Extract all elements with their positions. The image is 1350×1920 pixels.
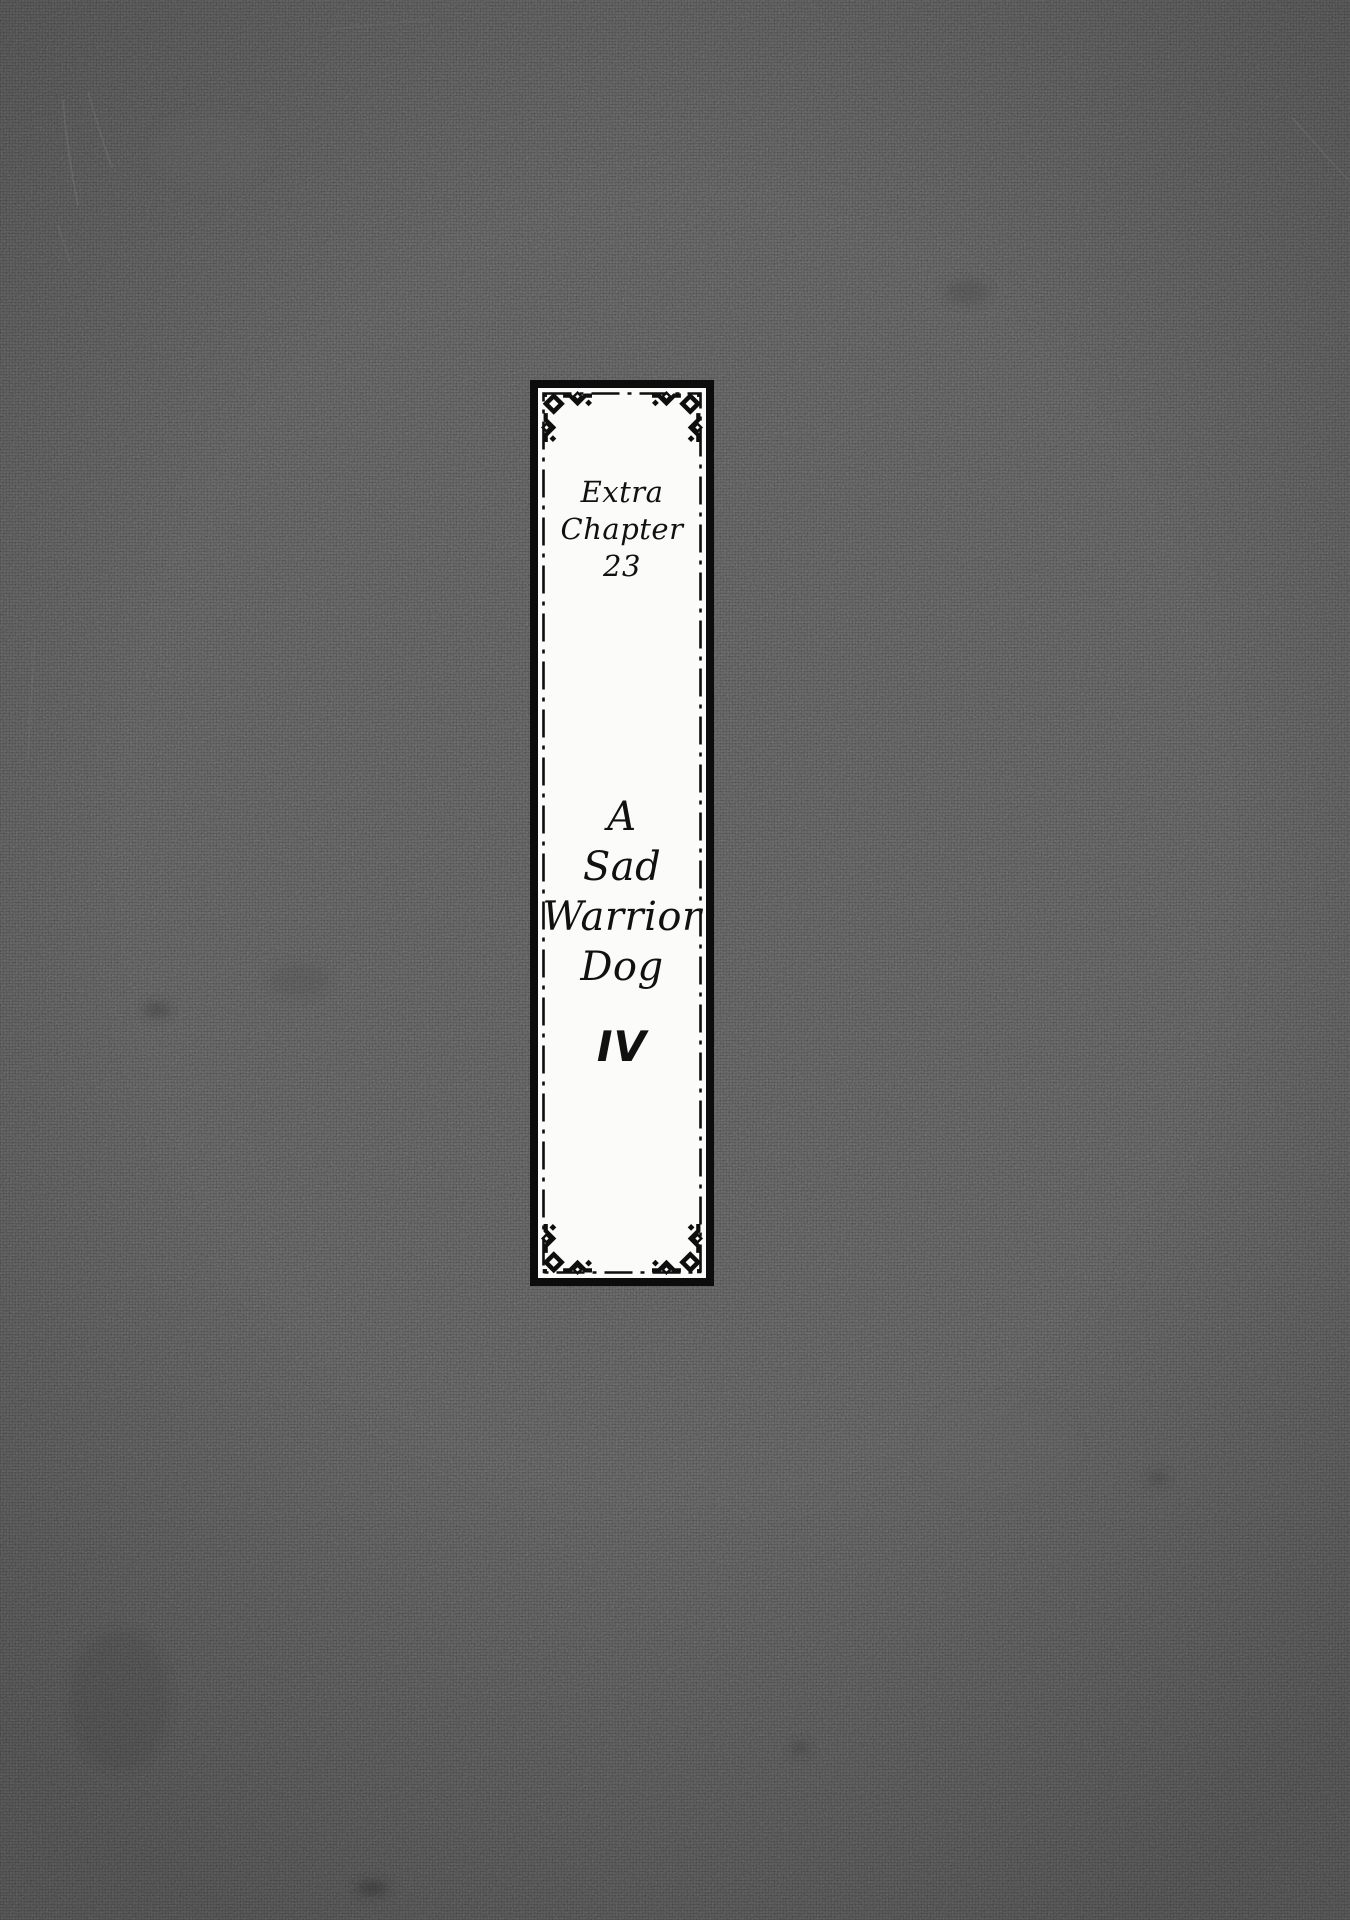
chapter-title-line-4: Dog: [538, 942, 706, 992]
chapter-title-panel: Extra Chapter 23 A Sad Warrior Dog IV: [530, 380, 714, 1286]
corner-ornament-top-right-icon: [652, 391, 703, 442]
corner-ornament-top-left-icon: [541, 391, 592, 442]
volume-numeral: IV: [538, 1024, 706, 1070]
corner-ornament-bottom-right-icon: [652, 1224, 703, 1275]
panel-paper: Extra Chapter 23 A Sad Warrior Dog IV: [538, 388, 706, 1278]
chapter-label-line2: Chapter 23: [538, 511, 706, 585]
page-background: Extra Chapter 23 A Sad Warrior Dog IV: [0, 0, 1350, 1920]
chapter-title-line-2: Sad: [538, 842, 706, 892]
chapter-label: Extra Chapter 23: [538, 474, 706, 585]
chapter-title-line-1: A: [538, 792, 706, 842]
corner-ornament-bottom-left-icon: [541, 1224, 592, 1275]
chapter-label-line1: Extra: [538, 474, 706, 511]
chapter-title-line-3: Warrior: [538, 892, 706, 942]
chapter-title: A Sad Warrior Dog: [538, 792, 706, 992]
